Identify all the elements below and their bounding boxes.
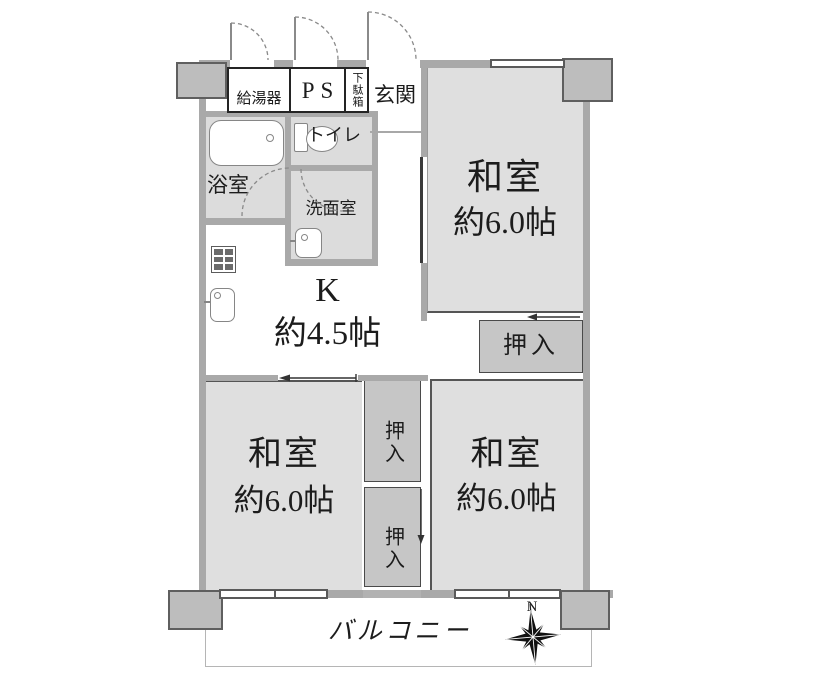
entrance-label: 玄関 xyxy=(368,81,422,109)
window-bottom-right xyxy=(454,589,561,599)
pillar-bottom-left xyxy=(168,590,223,630)
closet-middle-lower-label: 押入 xyxy=(364,510,421,588)
entrance-step-line xyxy=(370,131,421,133)
kitchen-size-label: 約4.5帖 xyxy=(200,314,455,354)
balcony-label: バルコニー xyxy=(298,614,502,648)
room-upper-right-size: 約6.0帖 xyxy=(427,202,583,242)
pillar-bottom-right xyxy=(560,590,610,630)
kitchen-name-label: K xyxy=(200,272,455,310)
wall-interior xyxy=(285,117,291,266)
wall-interior xyxy=(199,218,291,225)
shoe-cabinet-label: 下駄箱 xyxy=(351,72,362,108)
washbasin-faucet-icon xyxy=(290,240,296,242)
floor-plan: 給湯器 PS 下駄箱 玄関 浴室 トイレ 洗面室 K 約4.5帖 和室 約6.0… xyxy=(0,0,823,685)
closet-right-label: 押入 xyxy=(479,330,583,362)
room-lower-left-name: 和室 xyxy=(206,434,362,476)
room-upper-right-name: 和室 xyxy=(427,156,583,198)
closet-middle-upper-label: 押入 xyxy=(364,404,421,482)
washbasin-drain-icon xyxy=(301,234,308,241)
shoe-cabinet-box: 下駄箱 xyxy=(344,67,369,113)
stove-burners-icon xyxy=(214,249,233,270)
wall-interior xyxy=(288,165,378,171)
room-lower-right-size: 約6.0帖 xyxy=(430,478,583,518)
wall-right xyxy=(583,60,590,598)
bathtub-drain-icon xyxy=(266,134,274,142)
compass-north-label: N xyxy=(521,598,543,616)
door-swing-icon xyxy=(231,12,416,60)
pipe-space-box: PS xyxy=(289,67,346,113)
wall-interior xyxy=(288,259,378,266)
sliding-door xyxy=(420,157,423,263)
bathroom-label: 浴室 xyxy=(202,172,254,198)
pillar-top-left xyxy=(176,62,227,99)
wall-top xyxy=(420,60,490,68)
room-lower-left-size: 約6.0帖 xyxy=(206,480,362,520)
pillar-top-right xyxy=(562,58,613,102)
window-bottom-left xyxy=(219,589,328,599)
water-heater-label: 給湯器 xyxy=(236,92,281,111)
pipe-space-label: PS xyxy=(296,79,340,102)
bathtub-icon xyxy=(209,120,284,166)
wall-interior xyxy=(372,111,378,266)
room-lower-right-name: 和室 xyxy=(430,434,583,476)
toilet-label: トイレ xyxy=(302,124,366,146)
wall-interior xyxy=(199,375,278,381)
washroom-label: 洗面室 xyxy=(291,196,371,220)
wall-interior xyxy=(358,375,428,381)
wall-bottom-closet-strip xyxy=(363,590,421,598)
window-top xyxy=(490,59,565,68)
water-heater-box: 給湯器 xyxy=(227,67,291,113)
washbasin-icon xyxy=(295,228,322,258)
